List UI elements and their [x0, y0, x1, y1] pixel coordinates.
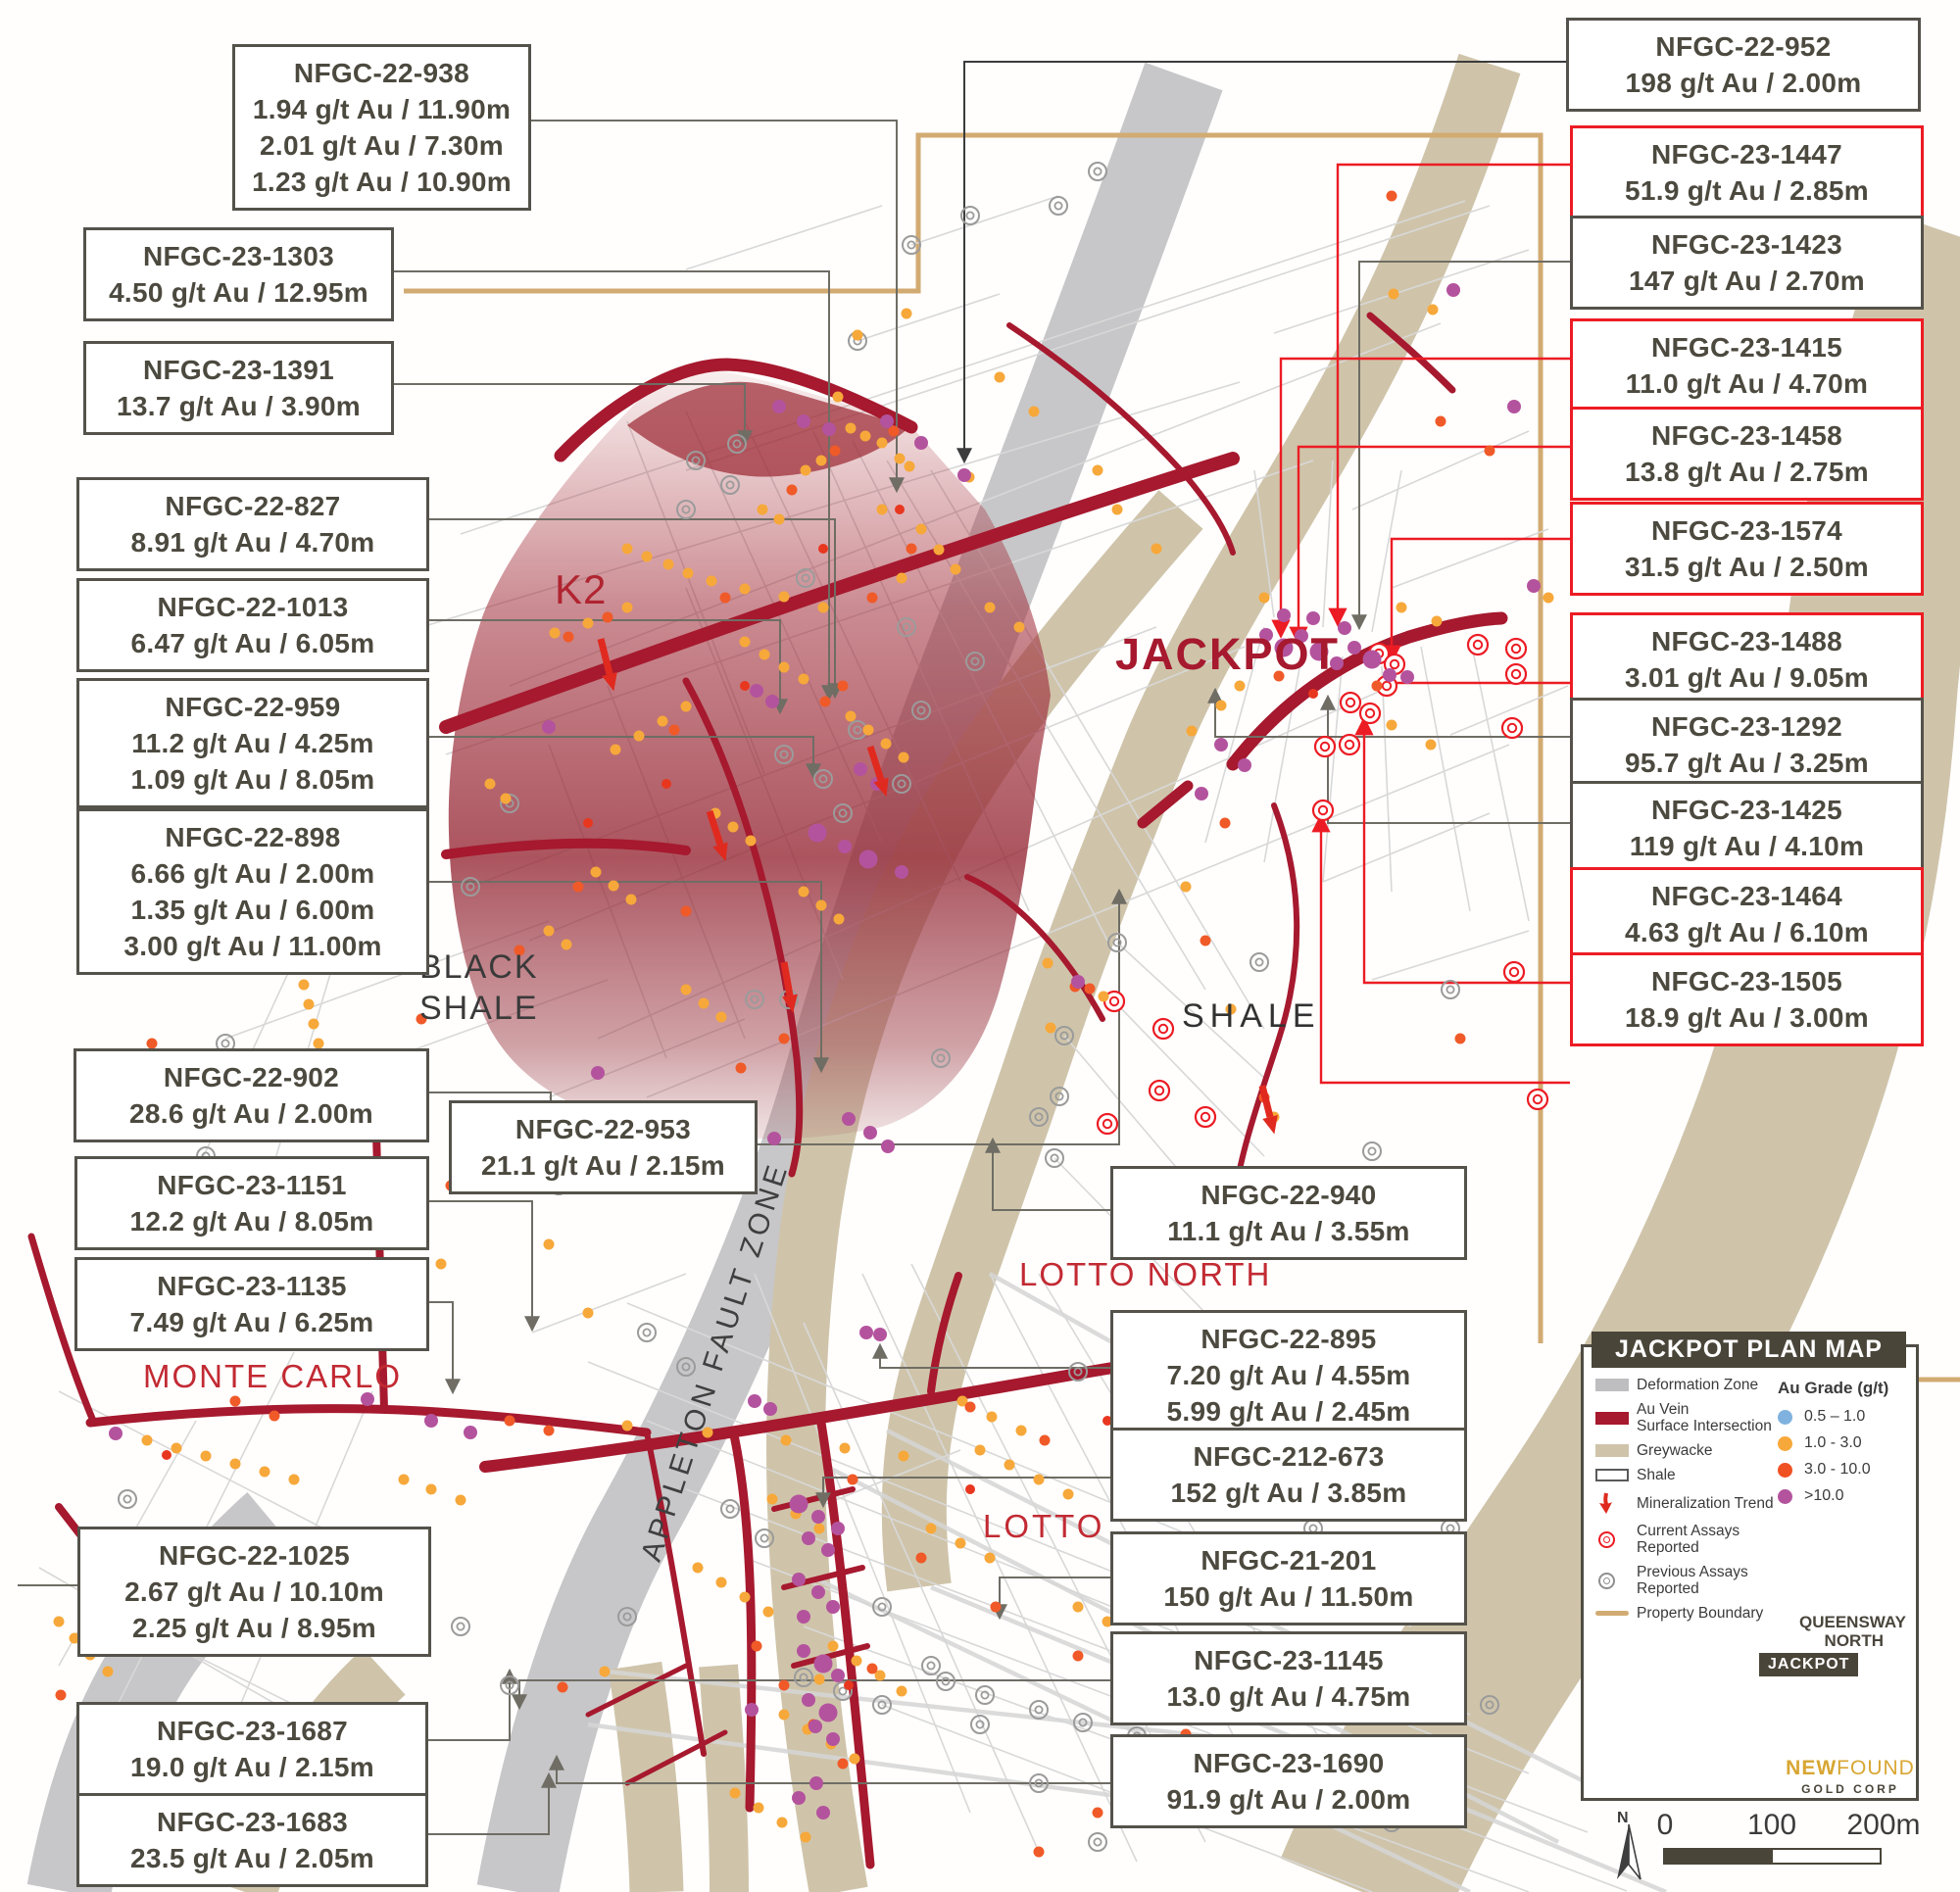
- assay-intercept: 6.47 g/t Au / 6.05m: [83, 625, 422, 661]
- assay-intercept: 13.8 g/t Au / 2.75m: [1577, 454, 1917, 490]
- assay-intercept: 3.00 g/t Au / 11.00m: [83, 928, 422, 964]
- callout-NFGC-212-673: NFGC-212-673152 g/t Au / 3.85m: [1110, 1428, 1467, 1522]
- drillhole-id: NFGC-23-1505: [1577, 963, 1917, 999]
- property-boundary-line-icon: [1595, 1611, 1637, 1616]
- callout-NFGC-23-1488: NFGC-23-14883.01 g/t Au / 9.05m: [1570, 612, 1924, 706]
- drillhole-id: NFGC-22-898: [83, 819, 422, 855]
- assay-intercept: 150 g/t Au / 11.50m: [1117, 1578, 1460, 1615]
- drillhole-id: NFGC-21-201: [1117, 1542, 1460, 1578]
- assay-intercept: 21.1 g/t Au / 2.15m: [456, 1147, 751, 1184]
- assay-intercept: 28.6 g/t Au / 2.00m: [80, 1095, 422, 1132]
- shale-swatch-icon: [1595, 1469, 1637, 1481]
- assay-intercept: 8.91 g/t Au / 4.70m: [83, 524, 422, 560]
- assay-intercept: 12.2 g/t Au / 8.05m: [81, 1203, 422, 1239]
- callout-NFGC-23-1447: NFGC-23-144751.9 g/t Au / 2.85m: [1570, 125, 1924, 219]
- assay-intercept: 31.5 g/t Au / 2.50m: [1577, 549, 1917, 585]
- assay-intercept: 1.94 g/t Au / 11.90m: [239, 91, 524, 127]
- assay-intercept: 4.63 g/t Au / 6.10m: [1577, 914, 1917, 950]
- assay-intercept: 2.67 g/t Au / 10.10m: [84, 1574, 424, 1610]
- assay-intercept: 5.99 g/t Au / 2.45m: [1117, 1393, 1460, 1430]
- callout-NFGC-22-938: NFGC-22-9381.94 g/t Au / 11.90m2.01 g/t …: [232, 44, 531, 211]
- assay-intercept: 13.7 g/t Au / 3.90m: [90, 388, 387, 424]
- drillhole-id: NFGC-22-959: [83, 689, 422, 725]
- legend-item-deformation-zone: Deformation Zone: [1595, 1377, 1782, 1393]
- north-arrow: N: [1617, 1810, 1641, 1879]
- assay-intercept: 11.0 g/t Au / 4.70m: [1577, 365, 1917, 402]
- drillhole-id: NFGC-23-1425: [1577, 792, 1917, 828]
- inset-jackpot-badge: JACKPOT: [1759, 1653, 1858, 1676]
- assay-intercept: 11.1 g/t Au / 3.55m: [1117, 1213, 1460, 1249]
- scale-tick-0: 0: [1650, 1809, 1680, 1842]
- callout-NFGC-23-1135: NFGC-23-11357.49 g/t Au / 6.25m: [74, 1257, 429, 1351]
- callout-NFGC-23-1458: NFGC-23-145813.8 g/t Au / 2.75m: [1570, 407, 1924, 501]
- callout-NFGC-23-1303: NFGC-23-13034.50 g/t Au / 12.95m: [83, 227, 394, 321]
- callout-NFGC-23-1415: NFGC-23-141511.0 g/t Au / 4.70m: [1570, 318, 1924, 412]
- greywacke-swatch-icon: [1595, 1444, 1637, 1457]
- lithology-label-shale: SHALE: [1182, 997, 1321, 1036]
- assay-intercept: 1.09 g/t Au / 8.05m: [83, 761, 422, 798]
- zone-label-monte-carlo: MONTE CARLO: [143, 1358, 402, 1395]
- assay-intercept: 7.49 g/t Au / 6.25m: [81, 1304, 422, 1340]
- drillhole-id: NFGC-23-1488: [1577, 623, 1917, 659]
- callout-NFGC-22-902: NFGC-22-90228.6 g/t Au / 2.00m: [73, 1048, 429, 1142]
- legend-item-mineralization-trend: Mineralization Trend: [1595, 1491, 1782, 1515]
- drillhole-id: NFGC-23-1423: [1577, 226, 1917, 263]
- drillhole-id: NFGC-23-1303: [90, 238, 387, 274]
- assay-intercept: 152 g/t Au / 3.85m: [1117, 1475, 1460, 1511]
- assay-intercept: 23.5 g/t Au / 2.05m: [83, 1840, 421, 1876]
- drillhole-id: NFGC-23-1683: [83, 1804, 421, 1840]
- drillhole-id: NFGC-22-1013: [83, 589, 422, 625]
- legend-item-property-boundary: Property Boundary: [1595, 1605, 1782, 1622]
- inset-region-label: QUEENSWAY NORTH: [1799, 1613, 1884, 1650]
- assay-intercept: 91.9 g/t Au / 2.00m: [1117, 1781, 1460, 1818]
- callout-NFGC-23-1151: NFGC-23-115112.2 g/t Au / 8.05m: [74, 1156, 429, 1250]
- drillhole-id: NFGC-23-1151: [81, 1167, 422, 1203]
- callout-NFGC-23-1683: NFGC-23-168323.5 g/t Au / 2.05m: [76, 1793, 428, 1887]
- jackpot-plan-map: Appleton Fault Zone JBP Fault Zone N N K…: [0, 0, 1960, 1892]
- assay-intercept: 2.01 g/t Au / 7.30m: [239, 127, 524, 164]
- assay-intercept: 198 g/t Au / 2.00m: [1573, 65, 1914, 101]
- drillhole-id: NFGC-212-673: [1117, 1438, 1460, 1475]
- grade-dot-orange-icon: [1778, 1463, 1792, 1478]
- callout-NFGC-22-940: NFGC-22-94011.1 g/t Au / 3.55m: [1110, 1166, 1467, 1260]
- callout-NFGC-22-1013: NFGC-22-10136.47 g/t Au / 6.05m: [76, 578, 429, 672]
- drillhole-id: NFGC-23-1391: [90, 352, 387, 388]
- zone-label-k2: K2: [555, 566, 607, 613]
- legend-item-previous-assays: Previous Assays Reported: [1595, 1564, 1782, 1597]
- assay-intercept: 18.9 g/t Au / 3.00m: [1577, 999, 1917, 1036]
- au-vein-swatch-icon: [1595, 1412, 1637, 1425]
- assay-intercept: 6.66 g/t Au / 2.00m: [83, 855, 422, 892]
- newfound-gold-corp-logo: NEWFOUND GOLD CORP: [1784, 1757, 1917, 1796]
- callout-NFGC-22-1025: NFGC-22-10252.67 g/t Au / 10.10m2.25 g/t…: [77, 1527, 431, 1657]
- callout-NFGC-23-1464: NFGC-23-14644.63 g/t Au / 6.10m: [1570, 867, 1924, 961]
- callout-NFGC-23-1423: NFGC-23-1423147 g/t Au / 2.70m: [1570, 216, 1924, 310]
- legend-title: JACKPOT PLAN MAP: [1592, 1332, 1906, 1368]
- grade-dot-purple-icon: [1778, 1489, 1792, 1504]
- drillhole-id: NFGC-23-1135: [81, 1268, 422, 1304]
- drillhole-id: NFGC-23-1574: [1577, 512, 1917, 549]
- callout-NFGC-22-898: NFGC-22-8986.66 g/t Au / 2.00m1.35 g/t A…: [76, 808, 429, 975]
- scale-tick-100: 100: [1742, 1809, 1801, 1842]
- drillhole-id: NFGC-23-1292: [1577, 708, 1917, 745]
- zone-label-lotto: LOTTO: [983, 1508, 1104, 1545]
- assay-intercept: 3.01 g/t Au / 9.05m: [1577, 659, 1917, 696]
- drillhole-id: NFGC-23-1145: [1117, 1642, 1460, 1678]
- zone-label-lotto-north: LOTTO NORTH: [1019, 1256, 1271, 1293]
- callout-NFGC-22-952: NFGC-22-952198 g/t Au / 2.00m: [1566, 18, 1921, 112]
- callout-NFGC-23-1574: NFGC-23-157431.5 g/t Au / 2.50m: [1570, 502, 1924, 596]
- drillhole-id: NFGC-23-1690: [1117, 1745, 1460, 1781]
- assay-intercept: 13.0 g/t Au / 4.75m: [1117, 1678, 1460, 1715]
- legend-item-shale: Shale: [1595, 1467, 1782, 1483]
- au-grade-class: 0.5 – 1.0: [1778, 1408, 1915, 1426]
- legend-item-au-vein: Au Vein Surface Intersection: [1595, 1401, 1782, 1434]
- assay-intercept: 1.23 g/t Au / 10.90m: [239, 164, 524, 200]
- zone-label-jackpot: JACKPOT: [1115, 629, 1340, 680]
- deformation-zone-swatch-icon: [1595, 1379, 1637, 1391]
- assay-intercept: 147 g/t Au / 2.70m: [1577, 263, 1917, 299]
- assay-intercept: 19.0 g/t Au / 2.15m: [83, 1749, 421, 1785]
- assay-intercept: 95.7 g/t Au / 3.25m: [1577, 745, 1917, 781]
- au-grade-legend: Au Grade (g/t) 0.5 – 1.0 1.0 - 3.0 3.0 -…: [1778, 1379, 1915, 1514]
- assay-intercept: 51.9 g/t Au / 2.85m: [1577, 172, 1917, 209]
- drillhole-id: NFGC-22-938: [239, 55, 524, 91]
- callout-NFGC-22-959: NFGC-22-95911.2 g/t Au / 4.25m1.09 g/t A…: [76, 678, 429, 808]
- drillhole-id: NFGC-22-940: [1117, 1177, 1460, 1213]
- legend-item-greywacke: Greywacke: [1595, 1442, 1782, 1459]
- drillhole-id: NFGC-22-953: [456, 1111, 751, 1147]
- callout-NFGC-23-1425: NFGC-23-1425119 g/t Au / 4.10m: [1570, 781, 1924, 875]
- legend-panel: JACKPOT PLAN MAP Deformation Zone Au Vei…: [1581, 1344, 1919, 1801]
- au-grade-title: Au Grade (g/t): [1778, 1379, 1915, 1398]
- drillhole-id: NFGC-22-902: [80, 1059, 422, 1095]
- drillhole-id: NFGC-22-827: [83, 488, 422, 524]
- drillhole-id: NFGC-23-1464: [1577, 878, 1917, 914]
- au-grade-class: 1.0 - 3.0: [1778, 1434, 1915, 1452]
- mineralization-trend-arrow-icon: [1595, 1491, 1637, 1515]
- legend-items: Deformation Zone Au Vein Surface Interse…: [1595, 1377, 1782, 1629]
- drillhole-id: NFGC-23-1458: [1577, 417, 1917, 454]
- previous-assays-ring-icon: [1595, 1573, 1637, 1589]
- scale-bar: [1663, 1848, 1882, 1865]
- callout-NFGC-22-827: NFGC-22-8278.91 g/t Au / 4.70m: [76, 477, 429, 571]
- drillhole-id: NFGC-22-895: [1117, 1321, 1460, 1357]
- grade-dot-yellow-icon: [1778, 1436, 1792, 1451]
- assay-intercept: 2.25 g/t Au / 8.95m: [84, 1610, 424, 1646]
- callout-NFGC-23-1292: NFGC-23-129295.7 g/t Au / 3.25m: [1570, 698, 1924, 792]
- callout-NFGC-23-1145: NFGC-23-114513.0 g/t Au / 4.75m: [1110, 1631, 1467, 1725]
- callout-NFGC-23-1505: NFGC-23-150518.9 g/t Au / 3.00m: [1570, 952, 1924, 1046]
- callout-NFGC-23-1687: NFGC-23-168719.0 g/t Au / 2.15m: [76, 1702, 428, 1796]
- legend-item-current-assays: Current Assays Reported: [1595, 1523, 1782, 1556]
- callout-NFGC-23-1391: NFGC-23-139113.7 g/t Au / 3.90m: [83, 341, 394, 435]
- svg-text:N: N: [1617, 1810, 1629, 1826]
- callout-NFGC-22-953: NFGC-22-95321.1 g/t Au / 2.15m: [449, 1100, 758, 1194]
- lithology-label-black-shale: BLACK SHALE: [419, 946, 539, 1029]
- callout-NFGC-22-895: NFGC-22-8957.20 g/t Au / 4.55m5.99 g/t A…: [1110, 1310, 1467, 1440]
- assay-intercept: 7.20 g/t Au / 4.55m: [1117, 1357, 1460, 1393]
- callout-NFGC-21-201: NFGC-21-201150 g/t Au / 11.50m: [1110, 1531, 1467, 1625]
- drillhole-id: NFGC-22-952: [1573, 28, 1914, 65]
- drillhole-id: NFGC-22-1025: [84, 1537, 424, 1574]
- assay-intercept: 4.50 g/t Au / 12.95m: [90, 274, 387, 311]
- assay-intercept: 11.2 g/t Au / 4.25m: [83, 725, 422, 761]
- grade-dot-blue-icon: [1778, 1410, 1792, 1425]
- current-assays-ring-icon: [1595, 1531, 1637, 1548]
- drillhole-id: NFGC-23-1415: [1577, 329, 1917, 365]
- callout-NFGC-23-1690: NFGC-23-169091.9 g/t Au / 2.00m: [1110, 1734, 1467, 1828]
- au-grade-class: 3.0 - 10.0: [1778, 1461, 1915, 1479]
- drillhole-id: NFGC-23-1687: [83, 1713, 421, 1749]
- scale-tick-200m: 200m: [1835, 1809, 1933, 1842]
- assay-intercept: 1.35 g/t Au / 6.00m: [83, 892, 422, 928]
- assay-intercept: 119 g/t Au / 4.10m: [1577, 828, 1917, 864]
- drillhole-id: NFGC-23-1447: [1577, 136, 1917, 172]
- au-grade-class: >10.0: [1778, 1487, 1915, 1505]
